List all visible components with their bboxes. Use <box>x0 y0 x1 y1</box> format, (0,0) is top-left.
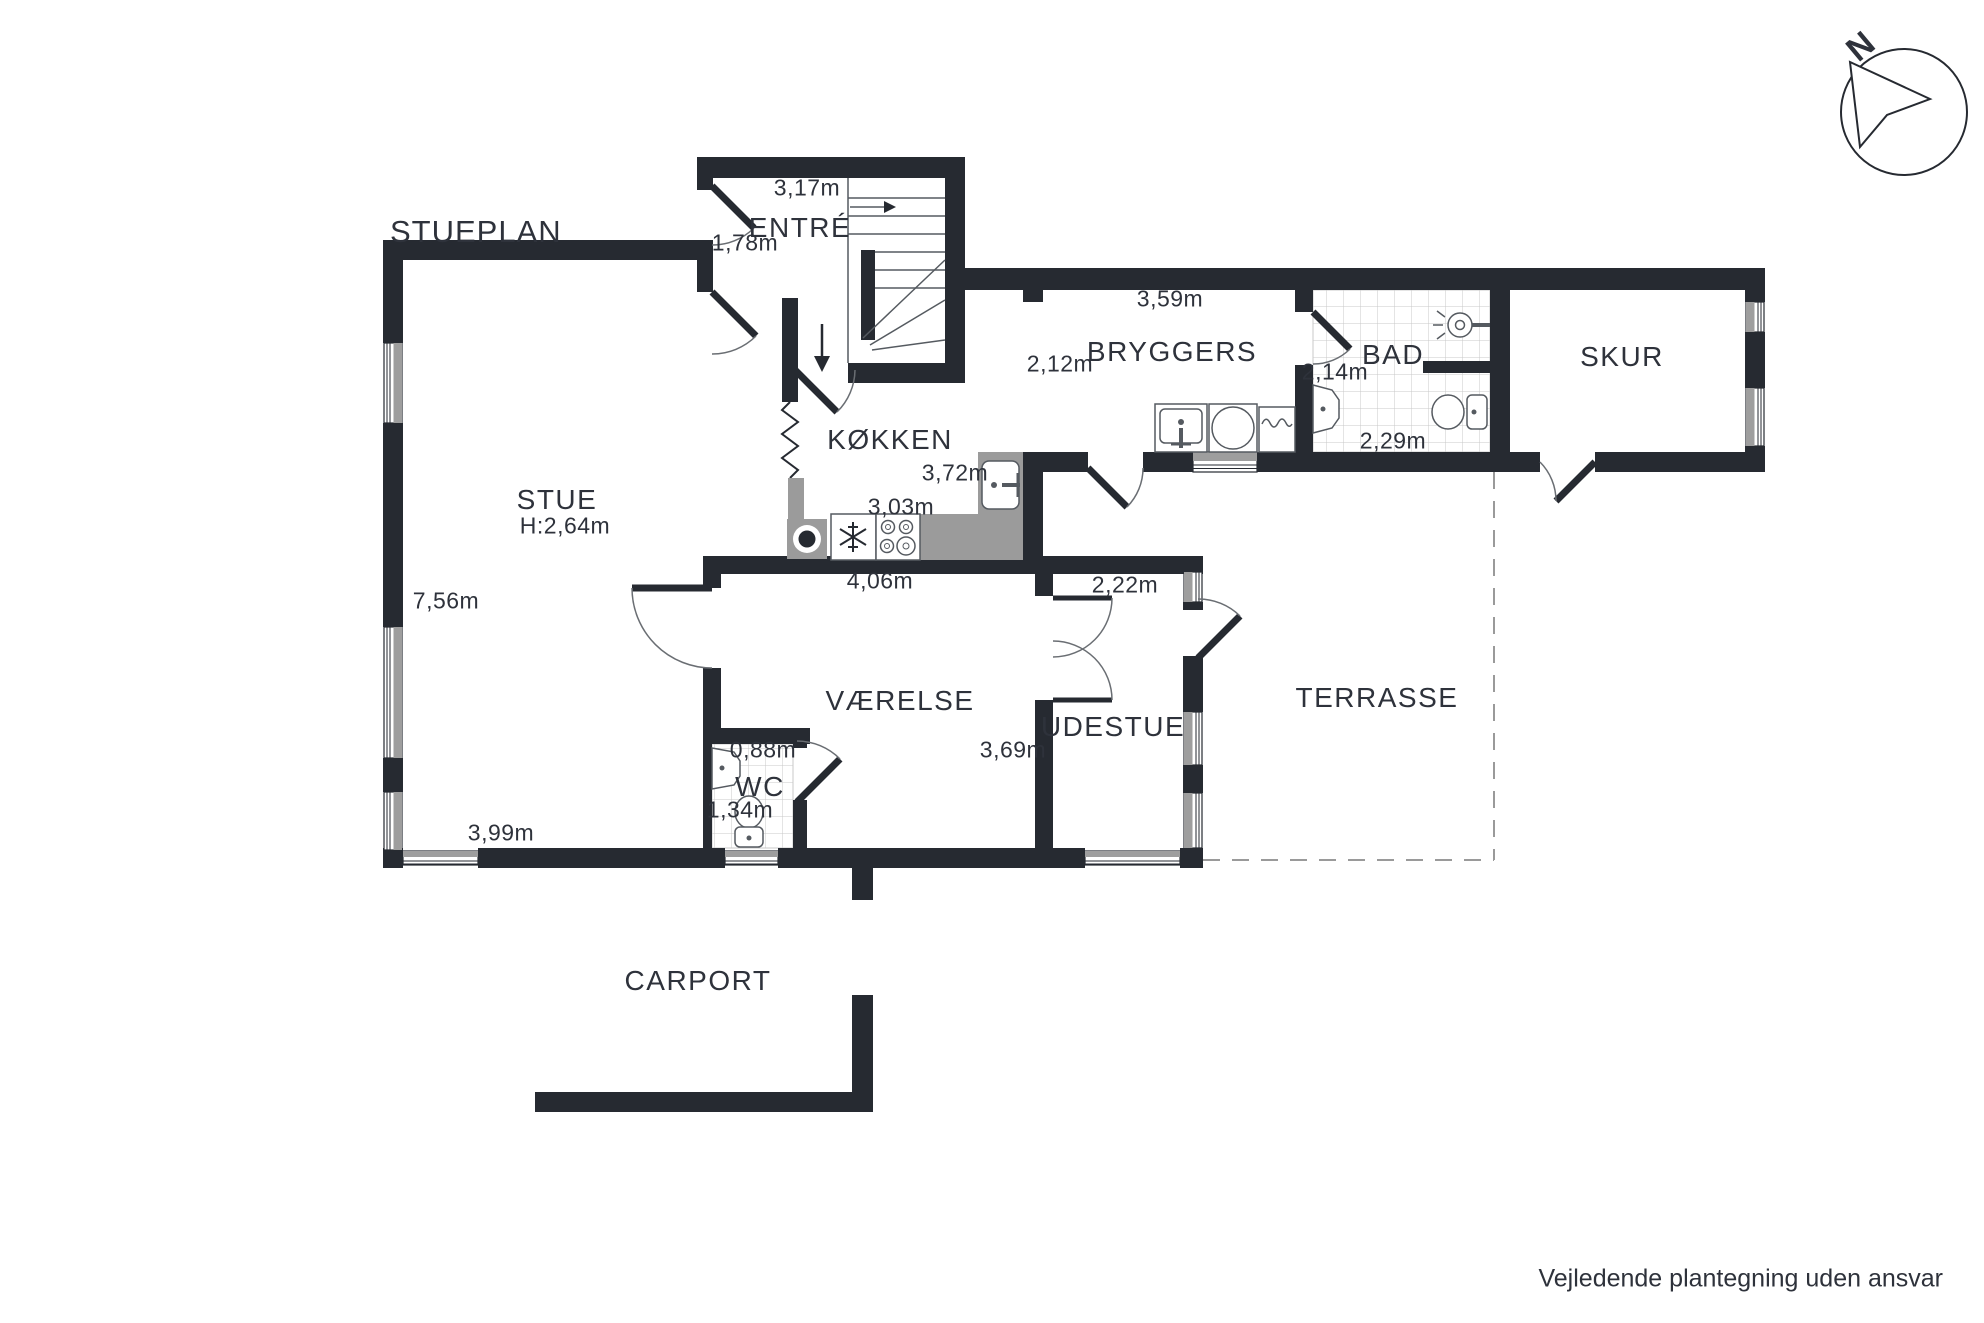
wc-door-icon <box>797 741 840 802</box>
dim-entre-width: 3,17m <box>774 175 840 202</box>
skur-door-icon <box>1540 462 1595 501</box>
udestue-double-door-icon <box>1053 598 1112 700</box>
dim-wc-north: 0,88m <box>730 737 796 764</box>
walls <box>383 157 1765 1112</box>
room-label-carport: CARPORT <box>625 965 772 997</box>
room-label-vaerelse: VÆRELSE <box>826 685 975 717</box>
window-icon <box>384 792 402 850</box>
round-hob-icon <box>787 519 827 559</box>
floor-plan-page: STUEPLAN ENTRÉ 3,17m 1,78m STUE H:2,64m … <box>0 0 1984 1323</box>
floor-plan-drawing <box>0 0 1984 1323</box>
dim-stue-height: H:2,64m <box>520 513 610 540</box>
window-icon <box>1746 302 1764 332</box>
dim-kokken-mid: 3,03m <box>868 494 934 521</box>
compass-icon <box>1841 49 1967 175</box>
fridge-icon <box>831 514 876 560</box>
window-icon <box>1184 712 1202 765</box>
terrace-boundary-dashed <box>1203 472 1494 860</box>
zigzag-symbol <box>782 402 798 478</box>
page-title: STUEPLAN <box>390 214 562 250</box>
room-label-terrasse: TERRASSE <box>1296 682 1459 714</box>
vaerelse-door-icon <box>632 588 712 668</box>
dim-kokken-east: 3,72m <box>922 460 988 487</box>
window-icon <box>1193 452 1257 472</box>
room-label-stue: STUE <box>517 484 598 516</box>
windows <box>384 302 1764 865</box>
dim-kokken-south: 4,06m <box>847 568 913 595</box>
dim-stue-south: 3,99m <box>468 820 534 847</box>
window-icon <box>1184 793 1202 848</box>
dim-entre-door: 1,78m <box>712 230 778 257</box>
staircase-icon <box>814 178 945 372</box>
laundry-basket-icon <box>1259 407 1295 452</box>
terrasse-door-icon <box>1198 599 1240 658</box>
room-label-udestue: UDESTUE <box>1041 711 1185 743</box>
toilet-icon <box>1432 395 1487 429</box>
window-icon <box>1184 572 1202 602</box>
dim-bryggers-north: 3,59m <box>1137 286 1203 313</box>
window-icon <box>384 343 402 423</box>
utility-sink-icon <box>1155 404 1207 452</box>
kitchen-door-icon <box>795 370 855 412</box>
dim-bad-south: 2,29m <box>1360 428 1426 455</box>
room-label-bryggers: BRYGGERS <box>1087 336 1257 368</box>
dim-bryggers-opening: 2,12m <box>1027 351 1093 378</box>
entre-stue-door-icon <box>712 292 756 354</box>
window-icon <box>725 851 778 865</box>
disclaimer-text: Vejledende plantegning uden ansvar <box>1538 1265 1943 1294</box>
dim-bad-west: 2,14m <box>1302 359 1368 386</box>
room-label-skur: SKUR <box>1580 341 1664 373</box>
dim-udestue-north: 2,22m <box>1092 572 1158 599</box>
stove-icon <box>876 514 920 560</box>
bryggers-door-icon <box>1088 468 1143 507</box>
window-icon <box>1085 851 1180 865</box>
stairs-up-arrow-icon <box>850 201 896 213</box>
stairs-down-arrow-icon <box>814 324 830 372</box>
dim-vaerelse-east: 3,69m <box>980 737 1046 764</box>
dim-wc-west: 1,34m <box>707 797 773 824</box>
dim-stue-west: 7,56m <box>413 588 479 615</box>
window-icon <box>384 627 402 758</box>
room-label-kokken: KØKKEN <box>827 424 953 456</box>
washing-machine-icon <box>1209 404 1257 452</box>
window-icon <box>403 851 478 865</box>
room-label-bad: BAD <box>1362 339 1424 371</box>
window-icon <box>1746 388 1764 446</box>
